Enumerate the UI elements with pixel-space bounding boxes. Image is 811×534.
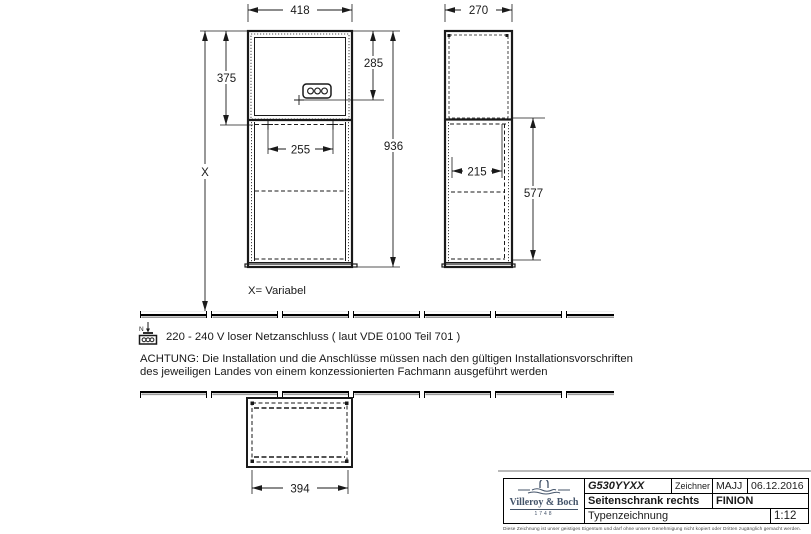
dim-width-top: 418	[290, 5, 309, 17]
front-dimensions: 418 X 375 285 936	[197, 3, 405, 311]
title-block-table: G530YYXX Zeichner MAJJ 06.12.2016 Seiten…	[585, 479, 808, 523]
variable-note: X= Variabel	[248, 285, 306, 297]
drawing-type: Typenzeichnung	[585, 509, 771, 523]
plan-dashed-inner	[252, 403, 347, 462]
plan-corner-dot-tr	[345, 402, 349, 406]
article-number: G530YYXX	[585, 479, 672, 493]
technical-drawing: 418 X 375 285 936	[0, 0, 811, 534]
plan-view	[247, 398, 352, 467]
front-niche-inner-border	[255, 38, 346, 116]
side-dimensions: 270 215 577	[445, 3, 546, 260]
power-arrow-head	[146, 329, 150, 333]
power-note: 220 - 240 V loser Netzanschluss ( laut V…	[166, 331, 461, 343]
front-base-plate	[245, 264, 357, 267]
drawing-sheet: 418 X 375 285 936	[0, 0, 811, 534]
title-block-row-3: Typenzeichnung 1:12	[585, 509, 808, 523]
wall-hatch-line-1	[140, 311, 614, 318]
warning-line-2: des jeweiligen Landes von einem konzessi…	[140, 366, 548, 378]
socket-pin-1	[308, 88, 314, 94]
side-corner-dot-right	[506, 34, 509, 37]
socket-pin-3	[322, 88, 328, 94]
logo-water-line-2	[528, 492, 560, 494]
villeroy-boch-icon	[516, 480, 572, 498]
plan-dimensions: 394	[252, 470, 348, 496]
brand-year: 1748	[534, 511, 553, 517]
plan-corner-dot-bl	[251, 460, 255, 464]
plan-corner-dot-br	[345, 460, 349, 464]
power-socket-pin-2	[146, 338, 150, 342]
title-block-row-1: G530YYXX Zeichner MAJJ 06.12.2016	[585, 479, 808, 494]
wall-hatch-line-2	[140, 391, 614, 398]
brand-logo: Villeroy & Boch 1748	[504, 479, 585, 523]
plan-corner-dot-tl	[251, 402, 255, 406]
drawing-scale: 1:12	[771, 509, 808, 523]
logo-jug-arch	[540, 480, 548, 488]
product-description: Seitenschrank rechts	[585, 494, 713, 508]
drawer-label: Zeichner	[672, 479, 713, 493]
logo-water-line-1	[518, 489, 570, 492]
dim-variable: X	[201, 167, 209, 179]
side-view	[442, 31, 515, 267]
warning-line-1: ACHTUNG: Die Installation und die Anschl…	[140, 353, 633, 365]
dim-inner-depth: 215	[467, 167, 486, 179]
power-symbol-letter: N	[139, 326, 144, 333]
copyright-disclaimer: Diese Zeichnung ist unser geistiges Eige…	[503, 526, 811, 531]
power-socket-pin-1	[142, 338, 146, 342]
side-corner-dot-left	[448, 34, 451, 37]
front-niche-dotted-border	[251, 34, 349, 119]
dim-drill-spacing: 255	[291, 145, 310, 157]
power-socket-pin-3	[150, 338, 154, 342]
power-connection-symbol: N	[139, 322, 157, 344]
dim-socket-height: 285	[364, 58, 383, 70]
drawing-date: 06.12.2016	[748, 479, 808, 493]
product-series: FINION	[713, 494, 808, 508]
drawer-name: MAJJ	[713, 479, 748, 493]
sheet-edge-line	[498, 470, 811, 472]
side-base-plate	[442, 264, 515, 267]
dim-plan-width: 394	[290, 484, 310, 496]
dim-depth: 270	[469, 5, 488, 17]
dim-lower-height: 577	[524, 188, 543, 200]
brand-name: Villeroy & Boch	[510, 498, 579, 510]
title-block: Villeroy & Boch 1748 G530YYXX Zeichner M…	[503, 478, 809, 524]
socket-pin-2	[315, 88, 321, 94]
dim-total-height: 936	[384, 141, 403, 153]
side-niche-dashed-border	[449, 35, 508, 118]
title-block-row-2: Seitenschrank rechts FINION	[585, 494, 808, 509]
dim-upper-height: 375	[217, 73, 236, 85]
